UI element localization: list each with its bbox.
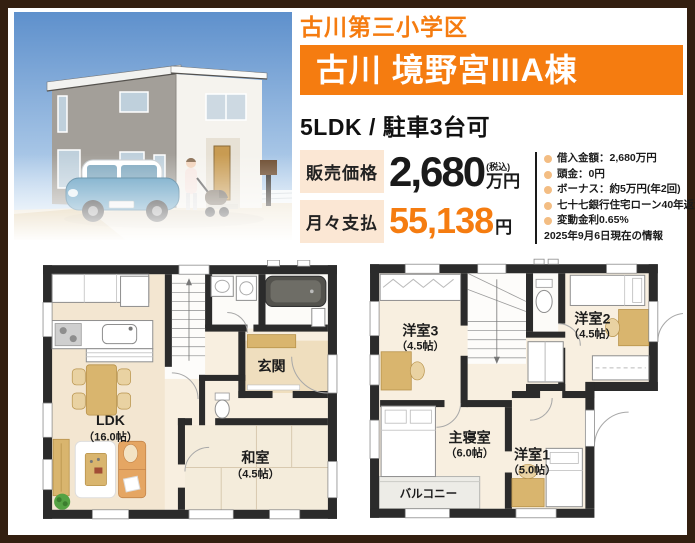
stove [55, 324, 81, 346]
bed-master [381, 406, 435, 476]
layout-parking-specs: 5LDK / 駐車3台可 [300, 108, 683, 142]
room-size-room2: （4.5帖） [568, 327, 617, 341]
bed-room1 [546, 448, 582, 506]
loan-item: 頭金：0円 [544, 167, 695, 183]
closet-room3 [380, 274, 461, 300]
plant [54, 494, 70, 510]
room-size-room1: （5.0帖） [508, 463, 557, 477]
monthly-payment-label: 月々支払 [300, 200, 384, 243]
room-label-washitsu: 和室 [240, 449, 269, 465]
house-exterior-photo [14, 12, 292, 242]
floor-plan-1f: LDK （16.0帖） 玄関 和室 （4.5帖） [38, 260, 342, 524]
monthly-payment-row: 月々支払 55,138 円 [300, 200, 532, 243]
closet-center [528, 342, 563, 382]
school-district: 古川第三小学区 [300, 12, 683, 42]
toilet-2f [536, 279, 552, 312]
monthly-payment-unit: 円 [495, 213, 512, 238]
window [58, 96, 67, 132]
room-size-master: （6.0帖） [445, 445, 494, 459]
flyer-page: 古川第三小学区 古川 境野宮IIIA棟 5LDK / 駐車3台可 販売価格 2,… [8, 8, 687, 535]
pricing-section: 販売価格 2,680 (税込) 万円 月々支払 55,138 円 [300, 150, 683, 250]
vertical-divider [535, 152, 537, 244]
room-label-room2: 洋室2 [574, 311, 610, 327]
bed-room2 [570, 275, 644, 305]
monthly-payment-value: 55,138 [389, 205, 493, 237]
price-column: 販売価格 2,680 (税込) 万円 月々支払 55,138 円 [300, 150, 532, 250]
room-label-room1: 洋室1 [514, 446, 550, 462]
loan-conditions-list: 借入金額：2,680万円 頭金：0円 ボーナス：約5万円(年2回) 七十七銀行住… [544, 151, 695, 229]
property-name: 古川 境野宮IIIA棟 [316, 52, 578, 88]
sale-price-value: 2,680 [389, 153, 484, 191]
sale-price-unit: 万円 [486, 173, 520, 191]
balcony-label: バルコニー [400, 488, 458, 501]
property-name-banner: 古川 境野宮IIIA棟 [300, 45, 683, 95]
house-illustration [14, 12, 292, 242]
loan-item: 変動金利0.65% [544, 213, 695, 229]
toilet-1f [215, 393, 229, 418]
room-label-room3: 洋室3 [402, 323, 438, 339]
closet-room2 [592, 356, 648, 380]
floor-plan-2f: 洋室3 （4.5帖） 洋室2 （4.5帖） 主寝室 （6.0帖） 洋室1 （5.… [365, 258, 687, 524]
room-size-ldk: （16.0帖） [83, 429, 138, 443]
window [120, 92, 148, 112]
bath-sink [312, 308, 325, 326]
property-info: 古川第三小学区 古川 境野宮IIIA棟 5LDK / 駐車3台可 販売価格 2,… [300, 12, 683, 250]
loan-item: 七十七銀行住宅ローン40年返済 [544, 198, 695, 214]
room-label-master: 主寝室 [449, 429, 491, 445]
room-label-ldk: LDK [96, 412, 126, 428]
loan-details: 借入金額：2,680万円 頭金：0円 ボーナス：約5万円(年2回) 七十七銀行住… [544, 150, 695, 250]
loan-item: ボーナス：約5万円(年2回) [544, 182, 695, 198]
room-size-washitsu: （4.5帖） [231, 467, 280, 481]
info-as-of-date: 2025年9月6日現在の情報 [544, 229, 695, 245]
sale-price-label: 販売価格 [300, 150, 384, 193]
room-label-entrance: 玄関 [257, 358, 285, 374]
washroom [211, 276, 256, 300]
loan-item: 借入金額：2,680万円 [544, 151, 695, 167]
sale-price-row: 販売価格 2,680 (税込) 万円 [300, 150, 532, 193]
room-size-room3: （4.5帖） [396, 339, 445, 353]
